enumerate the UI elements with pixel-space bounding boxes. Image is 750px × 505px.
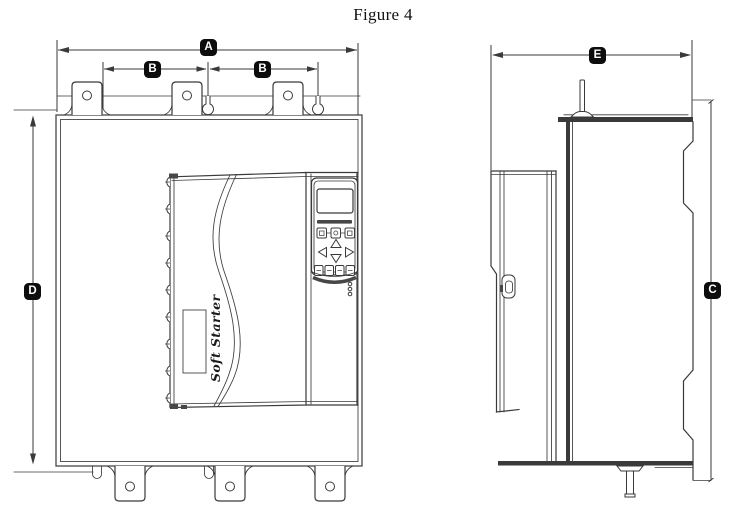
led [348, 282, 352, 286]
mounting-hole [126, 482, 135, 491]
mounting-hole [284, 91, 293, 100]
dim-badge-e: E [589, 47, 606, 64]
dim-badge-c: C [704, 282, 721, 299]
keyhole-slot [203, 96, 214, 115]
keyhole-slot [313, 96, 324, 115]
function-buttons-top [317, 228, 355, 238]
status-leds [348, 282, 352, 296]
dim-badge-b-left: B [144, 61, 161, 78]
front-view [14, 40, 362, 501]
mounting-hole [183, 91, 192, 100]
front-bottom-mounting-tabs [93, 466, 354, 501]
figure-title: Figure 4 [300, 5, 466, 25]
mounting-hole [326, 482, 335, 491]
dim-badge-d: D [24, 283, 41, 300]
mounting-hole [83, 91, 92, 100]
menu-button [317, 228, 327, 238]
card-slot [317, 220, 352, 224]
side-body [498, 115, 693, 480]
dim-badge-a: A [200, 39, 217, 56]
led [348, 292, 352, 296]
body-bottom-edge [498, 461, 693, 466]
led [348, 287, 352, 291]
door-hinge-cap-bottom [170, 404, 178, 409]
side-mounting-pins [571, 80, 643, 497]
mode-button [345, 228, 355, 238]
side-view [491, 40, 714, 497]
soft-starter-label: Soft Starter [208, 296, 222, 382]
figure-canvas: Figure 4 Soft Starter A B B D E C [0, 0, 750, 505]
technical-drawing [0, 0, 750, 505]
heatsink-fin-profile [684, 122, 694, 480]
dial-button [331, 228, 341, 238]
body-top-edge [558, 117, 693, 122]
lcd-display [317, 189, 353, 213]
top-mounting-pin [580, 80, 585, 113]
mounting-hole [226, 482, 235, 491]
side-door-edge [491, 171, 556, 412]
bottom-hook [93, 466, 102, 479]
bottom-hook [205, 466, 214, 479]
door-latch [502, 275, 515, 298]
body-front-edge [566, 122, 570, 461]
dim-badge-b-right: B [254, 61, 271, 78]
door-hinge-cap-top [169, 174, 178, 179]
bottom-mounting-pin [627, 471, 634, 495]
